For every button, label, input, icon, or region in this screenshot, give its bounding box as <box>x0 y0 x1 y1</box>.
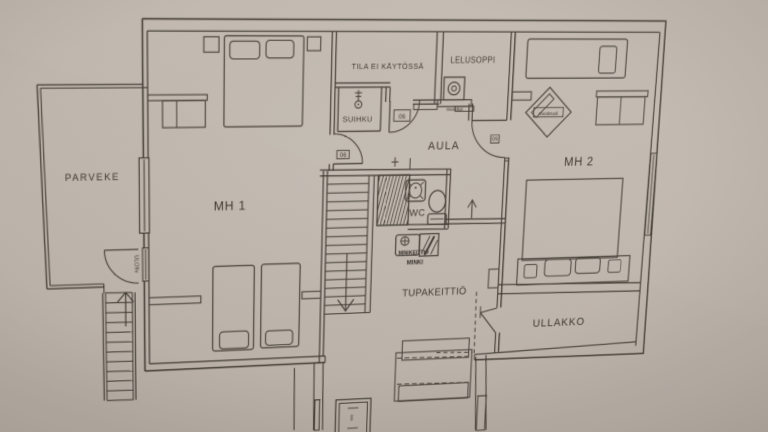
svg-text:AULA: AULA <box>428 139 461 152</box>
svg-text:MH 2: MH 2 <box>564 155 594 169</box>
svg-text:900: 900 <box>349 414 353 421</box>
svg-text:09: 09 <box>492 137 499 143</box>
svg-text:TUPAKEITTIÖ: TUPAKEITTIÖ <box>402 286 467 299</box>
svg-text:TILA EI KÄYTÖSSÄ: TILA EI KÄYTÖSSÄ <box>352 61 425 71</box>
svg-text:MH 1: MH 1 <box>214 199 247 213</box>
svg-text:06: 06 <box>340 153 347 160</box>
svg-text:Imuletkut: Imuletkut <box>446 107 463 113</box>
svg-text:PARVEKE: PARVEKE <box>65 173 120 184</box>
svg-text:SUIHKU: SUIHKU <box>342 114 372 124</box>
svg-text:ULLAKKO: ULLAKKO <box>532 316 585 330</box>
svg-text:MINIKEITTIÖ: MINIKEITTIÖ <box>398 249 429 256</box>
svg-text:WC: WC <box>409 208 426 219</box>
svg-text:Vuodetuoli: Vuodetuoli <box>539 111 559 117</box>
svg-text:MINKI: MINKI <box>407 260 424 267</box>
svg-text:ULO9v: ULO9v <box>133 255 140 274</box>
svg-text:06: 06 <box>399 114 406 120</box>
svg-text:LELUSOPPI: LELUSOPPI <box>450 56 495 65</box>
